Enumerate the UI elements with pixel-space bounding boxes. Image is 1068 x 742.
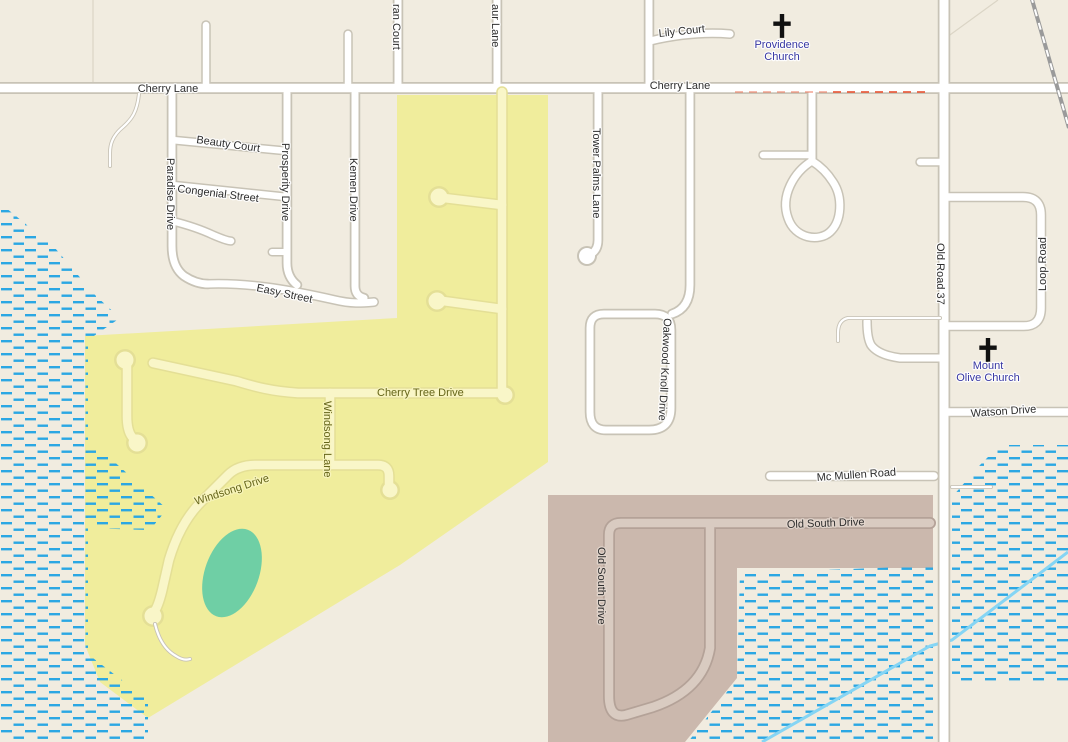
street-label-paradise-drive: Paradise Drive bbox=[164, 158, 176, 230]
street-label-ran-court: ran Court bbox=[390, 4, 402, 50]
street-label-old-south-drive-v: Old South Drive bbox=[595, 547, 607, 625]
street-label-prosperity-drive: Prosperity Drive bbox=[279, 143, 291, 221]
culdesac-windsong-south bbox=[145, 608, 162, 625]
culdesac-golf-1 bbox=[431, 189, 448, 206]
culdesac-golf-2 bbox=[429, 293, 446, 310]
poi-label-mount-olive-1: Mount bbox=[973, 360, 1004, 372]
street-label-windsong-lane: Windsong Lane bbox=[321, 401, 333, 477]
culdesac-cherry-tree-east bbox=[498, 388, 513, 403]
street-label-cherry-lane-west: Cherry Lane bbox=[138, 83, 199, 95]
street-label-kemen-drive: Kemen Drive bbox=[347, 158, 359, 222]
culdesac-branch bbox=[129, 435, 146, 452]
culdesac-windsong-east bbox=[383, 483, 398, 498]
street-label-cherry-tree-drive: Cherry Tree Drive bbox=[377, 387, 464, 399]
map-canvas: Cherry Lane Cherry Lane ran Court aur La… bbox=[0, 0, 1068, 742]
culdesac-tower-palms bbox=[579, 248, 595, 264]
map-viewport[interactable]: Cherry Lane Cherry Lane ran Court aur La… bbox=[0, 0, 1068, 742]
street-label-cherry-lane-east: Cherry Lane bbox=[650, 80, 711, 92]
poi-label-providence-2: Church bbox=[764, 51, 799, 63]
street-label-old-road-37: Old Road 37 bbox=[934, 243, 946, 305]
street-label-aur-lane: aur Lane bbox=[489, 4, 501, 47]
culdesac-cherry-tree-west bbox=[117, 352, 134, 369]
poi-label-mount-olive-2: Olive Church bbox=[956, 372, 1020, 384]
poi-label-providence-1: Providence bbox=[754, 39, 809, 51]
street-label-tower-palms-lane: Tower Palms Lane bbox=[590, 128, 602, 219]
street-label-loop-road: Loop Road bbox=[1037, 237, 1049, 291]
